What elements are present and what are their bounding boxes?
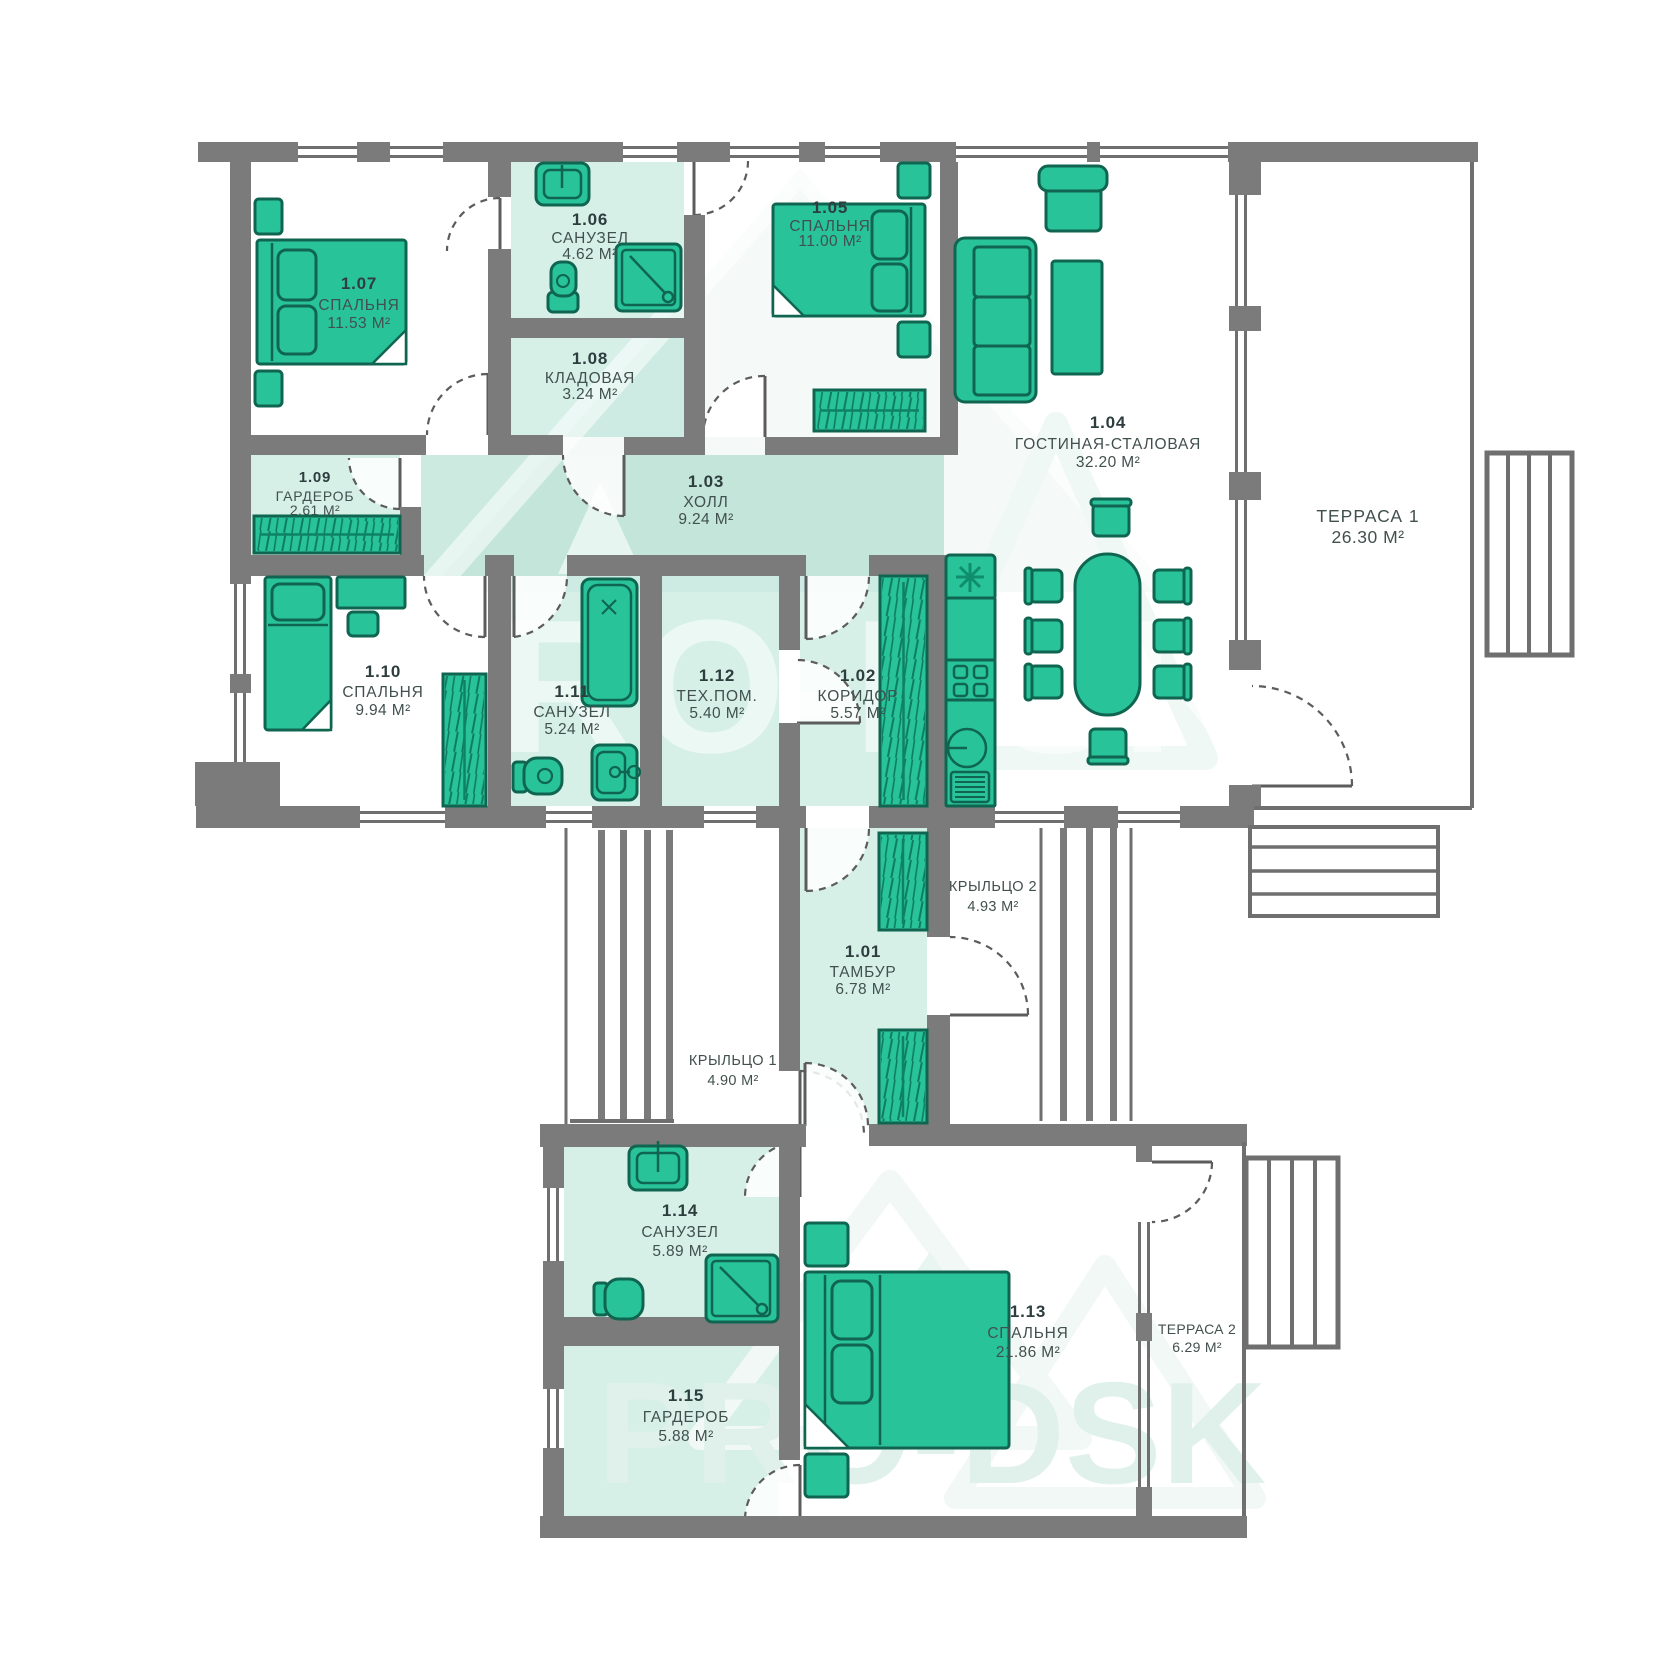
svg-text:1.13: 1.13 bbox=[1010, 1302, 1046, 1321]
svg-text:32.20 М²: 32.20 М² bbox=[1076, 454, 1140, 471]
svg-text:1.03: 1.03 bbox=[688, 472, 724, 491]
svg-text:КОРИДОР: КОРИДОР bbox=[818, 688, 899, 705]
svg-text:ТЕХ.ПОМ.: ТЕХ.ПОМ. bbox=[676, 688, 757, 705]
svg-text:21.86 М²: 21.86 М² bbox=[996, 1344, 1060, 1361]
svg-text:1.08: 1.08 bbox=[572, 349, 608, 368]
svg-text:СПАЛЬНЯ: СПАЛЬНЯ bbox=[318, 297, 399, 314]
svg-text:СПАЛЬНЯ: СПАЛЬНЯ bbox=[342, 684, 423, 701]
svg-text:2.61 М²: 2.61 М² bbox=[290, 502, 340, 518]
svg-text:6.29 М²: 6.29 М² bbox=[1172, 1339, 1222, 1355]
svg-text:САНУЗЕЛ: САНУЗЕЛ bbox=[551, 230, 628, 247]
svg-text:САНУЗЕЛ: САНУЗЕЛ bbox=[641, 1224, 718, 1241]
svg-text:КРЫЛЬЦО 1: КРЫЛЬЦО 1 bbox=[689, 1053, 777, 1069]
svg-text:ГАРДЕРОБ: ГАРДЕРОБ bbox=[643, 1409, 729, 1426]
svg-text:5.57 М²: 5.57 М² bbox=[830, 705, 885, 722]
svg-text:КРЫЛЬЦО 2: КРЫЛЬЦО 2 bbox=[949, 879, 1037, 895]
svg-text:ТАМБУР: ТАМБУР bbox=[829, 964, 896, 981]
svg-text:1.15: 1.15 bbox=[668, 1386, 704, 1405]
svg-text:3.24 М²: 3.24 М² bbox=[562, 386, 617, 403]
svg-text:26.30 М²: 26.30 М² bbox=[1331, 527, 1404, 547]
svg-text:11.00 М²: 11.00 М² bbox=[798, 233, 861, 250]
svg-text:9.94 М²: 9.94 М² bbox=[355, 702, 410, 719]
svg-text:5.89 М²: 5.89 М² bbox=[652, 1243, 707, 1260]
svg-text:9.24 М²: 9.24 М² bbox=[678, 511, 733, 528]
svg-text:1.01: 1.01 bbox=[845, 942, 881, 961]
svg-text:1.07: 1.07 bbox=[341, 274, 377, 293]
svg-text:1.12: 1.12 bbox=[699, 666, 735, 685]
svg-text:1.06: 1.06 bbox=[572, 210, 608, 229]
svg-text:ГОСТИНАЯ-СТАЛОВАЯ: ГОСТИНАЯ-СТАЛОВАЯ bbox=[1015, 436, 1201, 453]
svg-text:5.40 М²: 5.40 М² bbox=[689, 705, 744, 722]
svg-text:6.78 М²: 6.78 М² bbox=[835, 981, 890, 998]
svg-text:СПАЛЬНЯ: СПАЛЬНЯ bbox=[987, 1325, 1068, 1342]
svg-text:4.93 М²: 4.93 М² bbox=[967, 899, 1018, 915]
svg-text:ХОЛЛ: ХОЛЛ bbox=[683, 494, 728, 511]
svg-text:1.11: 1.11 bbox=[554, 682, 589, 701]
svg-text:5.88 М²: 5.88 М² bbox=[658, 1428, 713, 1445]
svg-text:5.24 М²: 5.24 М² bbox=[544, 721, 599, 738]
svg-text:ТЕРРАСА 2: ТЕРРАСА 2 bbox=[1158, 1321, 1236, 1337]
svg-text:КЛАДОВАЯ: КЛАДОВАЯ bbox=[545, 370, 635, 387]
svg-text:1.10: 1.10 bbox=[365, 662, 401, 681]
svg-text:1.09: 1.09 bbox=[299, 469, 331, 486]
svg-text:1.05: 1.05 bbox=[812, 198, 848, 217]
svg-text:1.14: 1.14 bbox=[662, 1201, 698, 1220]
svg-text:4.62 М²: 4.62 М² bbox=[562, 246, 617, 263]
svg-text:11.53 М²: 11.53 М² bbox=[327, 315, 390, 332]
svg-text:4.90 М²: 4.90 М² bbox=[707, 1073, 758, 1089]
svg-text:1.02: 1.02 bbox=[840, 666, 876, 685]
svg-text:ТЕРРАСА 1: ТЕРРАСА 1 bbox=[1316, 506, 1419, 526]
svg-text:1.04: 1.04 bbox=[1090, 413, 1126, 432]
svg-text:САНУЗЕЛ: САНУЗЕЛ bbox=[533, 704, 610, 721]
